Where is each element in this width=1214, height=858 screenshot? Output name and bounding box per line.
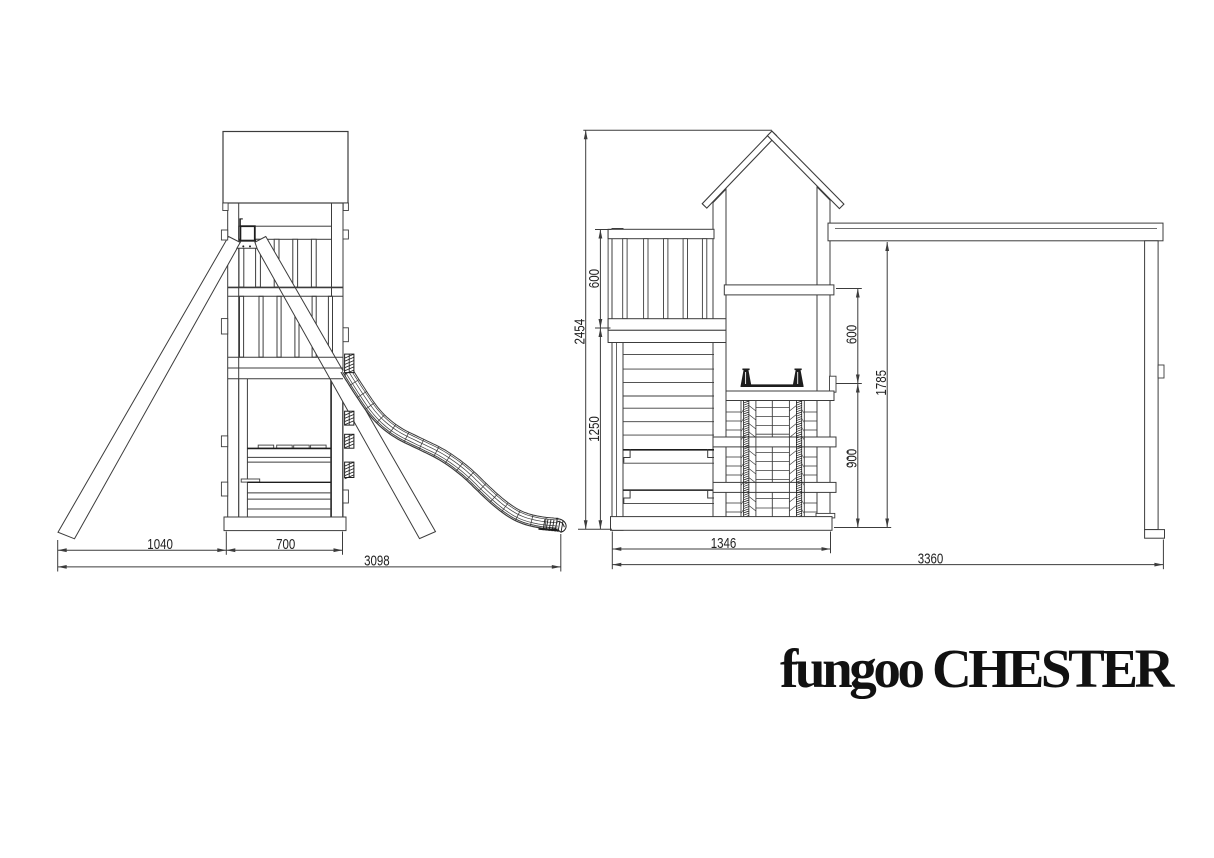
svg-text:1346: 1346: [711, 535, 737, 552]
svg-text:700: 700: [276, 536, 295, 553]
svg-text:1785: 1785: [873, 370, 890, 396]
svg-text:600: 600: [844, 325, 861, 344]
svg-text:2454: 2454: [572, 319, 589, 345]
svg-text:600: 600: [586, 269, 603, 288]
svg-text:900: 900: [844, 449, 861, 468]
svg-text:3360: 3360: [918, 551, 944, 568]
svg-text:3098: 3098: [364, 553, 390, 570]
svg-text:fungoo CHESTER: fungoo CHESTER: [780, 638, 1176, 699]
svg-text:1250: 1250: [586, 416, 603, 442]
svg-text:1040: 1040: [147, 536, 173, 553]
